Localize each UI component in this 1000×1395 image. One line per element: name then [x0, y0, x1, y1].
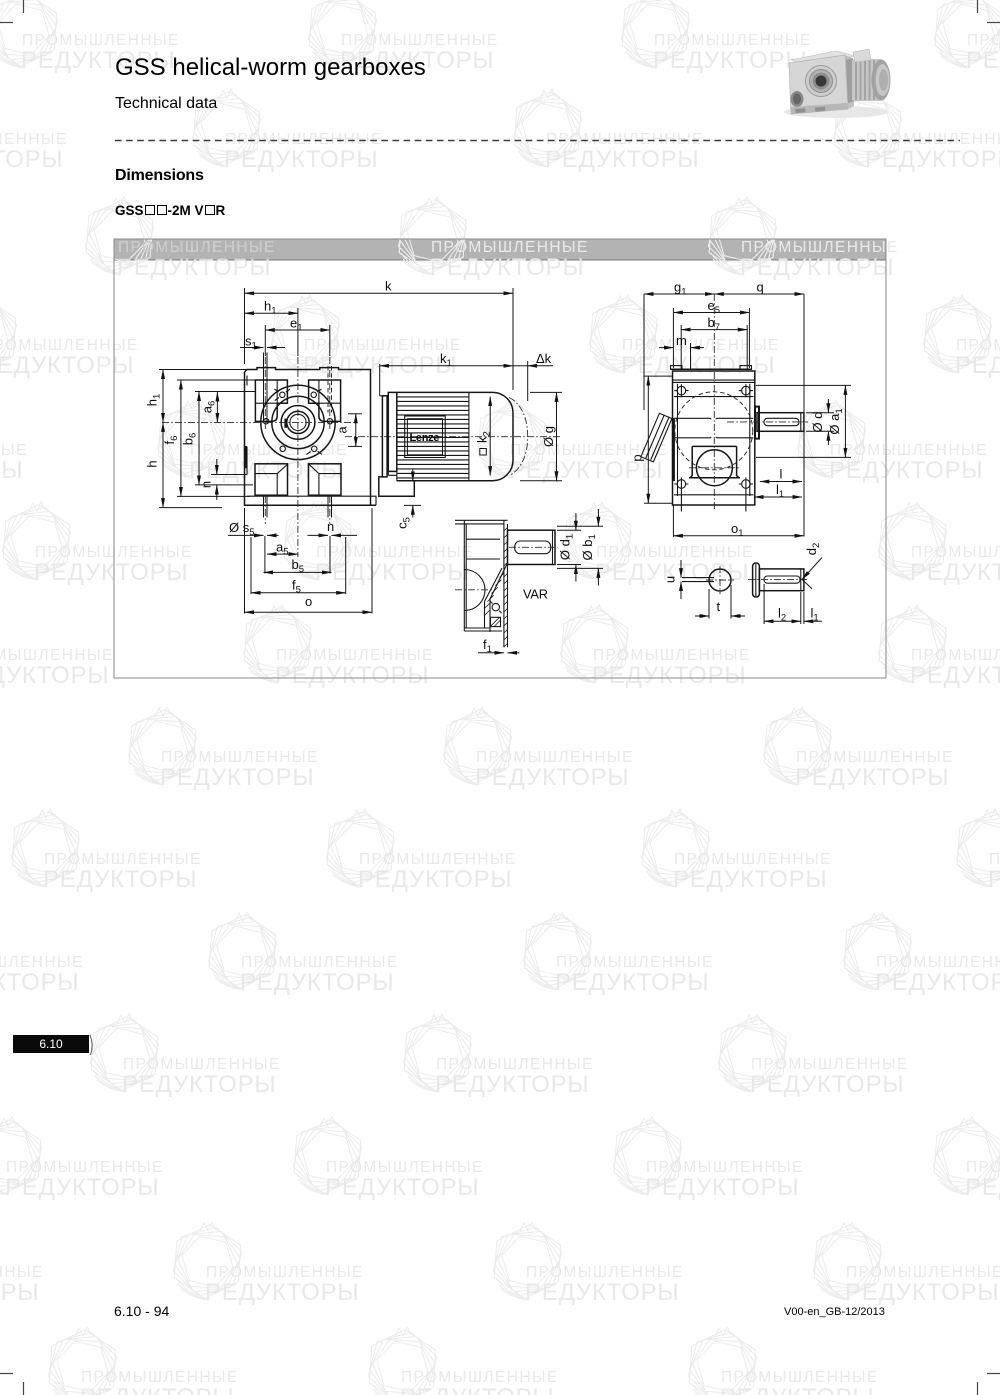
svg-text:c5: c5: [395, 517, 413, 529]
svg-text:u: u: [663, 576, 678, 583]
svg-text:d2: d2: [804, 543, 822, 556]
svg-text:a: a: [335, 426, 350, 434]
svg-text:h: h: [145, 460, 160, 467]
svg-text:a6: a6: [200, 401, 218, 414]
svg-text:b6: b6: [181, 433, 199, 446]
svg-text:k: k: [385, 279, 392, 294]
svg-text:p: p: [630, 454, 645, 461]
svg-text:m: m: [676, 333, 687, 348]
svg-text:g1: g1: [674, 279, 687, 297]
svg-text:VAR: VAR: [523, 587, 548, 602]
svg-text:Ø b1: Ø b1: [580, 534, 598, 560]
svg-text:h1: h1: [145, 394, 163, 407]
svg-text:l: l: [780, 467, 783, 482]
svg-text:b7: b7: [708, 315, 721, 333]
svg-text:Δk: Δk: [536, 351, 552, 366]
svg-text:e5: e5: [708, 298, 721, 316]
svg-text:Ø d1: Ø d1: [558, 534, 576, 560]
svg-text:h1: h1: [264, 299, 277, 317]
svg-text:e1: e1: [290, 316, 303, 334]
svg-text:Lenze: Lenze: [410, 432, 440, 444]
svg-text:t: t: [717, 599, 721, 614]
svg-text:o: o: [305, 594, 312, 609]
svg-text:n: n: [327, 519, 334, 534]
svg-text:s1: s1: [245, 334, 257, 352]
svg-text:Ø g: Ø g: [541, 426, 556, 447]
svg-text:f6: f6: [162, 436, 180, 445]
svg-text:n: n: [199, 481, 214, 488]
svg-text:Ø d: Ø d: [810, 412, 825, 433]
svg-text:a5: a5: [276, 540, 289, 558]
svg-text:q: q: [757, 279, 764, 294]
